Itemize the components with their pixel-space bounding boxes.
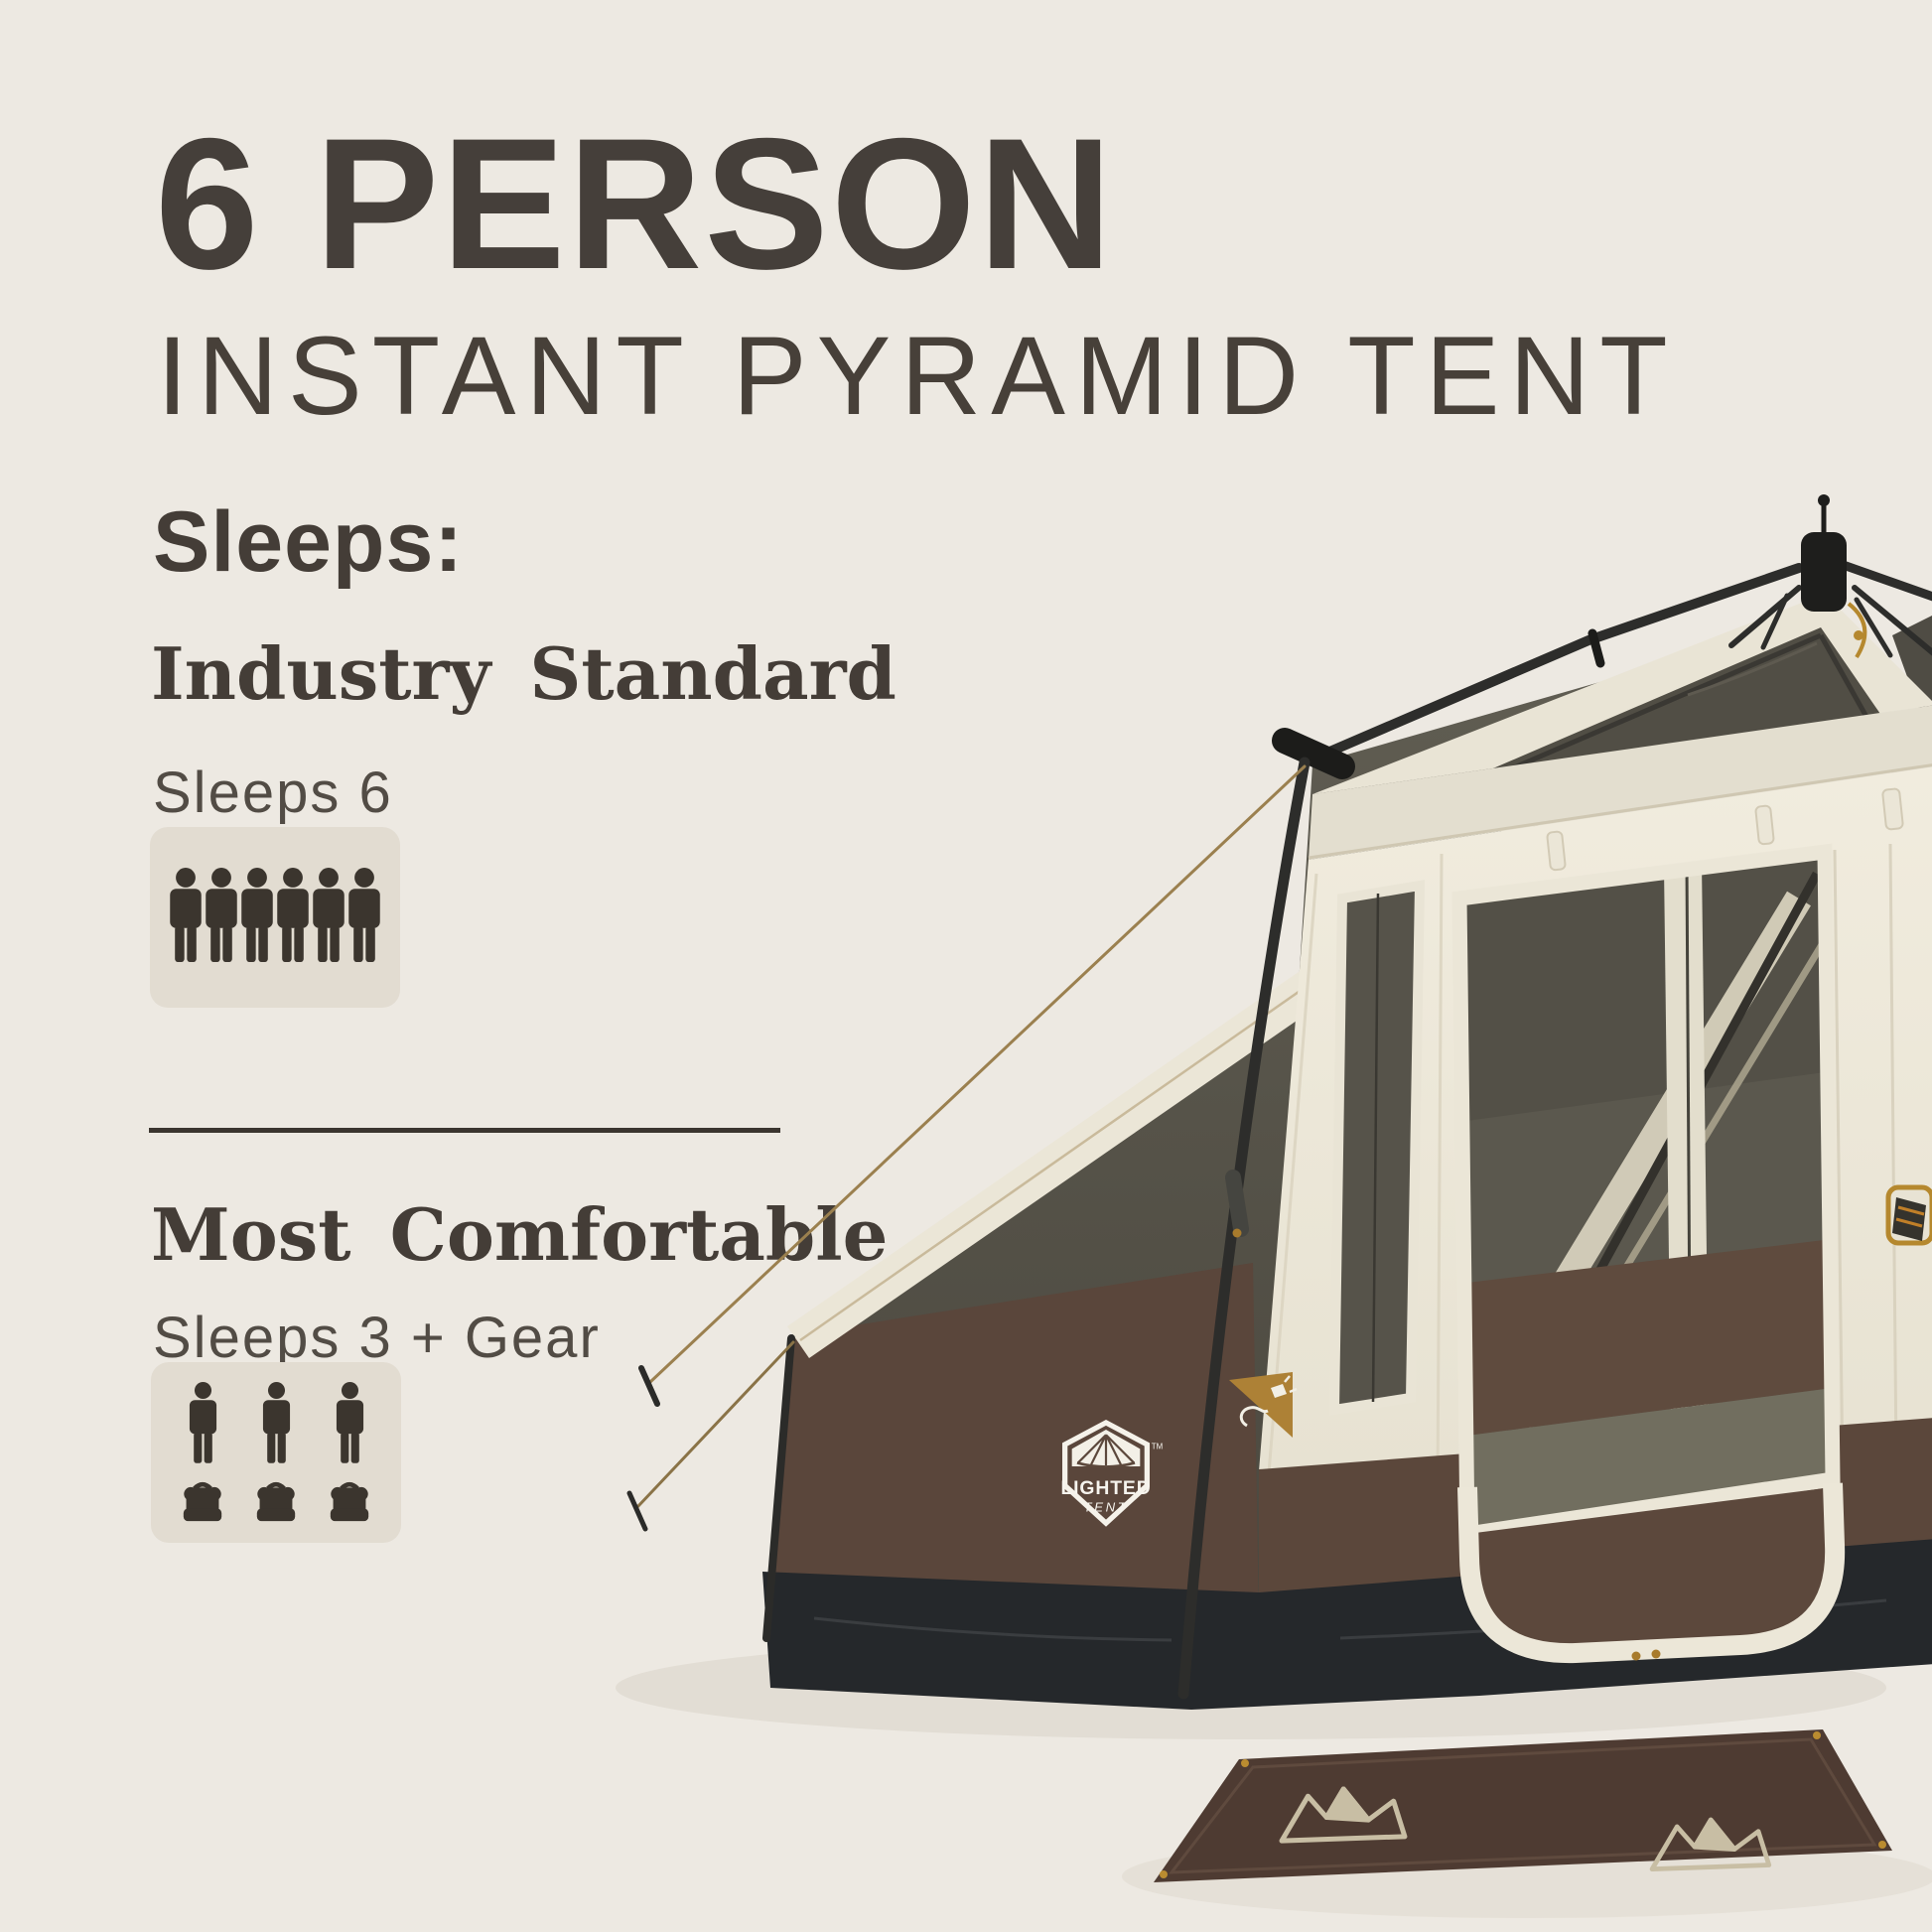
pole-gold-ring xyxy=(1233,1229,1242,1238)
tent-side-window xyxy=(1334,886,1420,1410)
badge-secondary-text: TENT xyxy=(1084,1500,1129,1515)
badge-primary-text: LIGHTED xyxy=(1060,1477,1151,1499)
pole-foam-grip xyxy=(1285,741,1342,766)
badge-trademark: TM xyxy=(1152,1442,1163,1450)
tent-front-window xyxy=(1449,834,1847,1549)
tent-product-photo: LIGHTED TENT TM xyxy=(0,0,1932,1932)
door-zipper-pull xyxy=(1652,1650,1661,1659)
door-zipper-pull xyxy=(1632,1652,1641,1661)
e-port-device xyxy=(1888,1187,1932,1243)
product-infographic: 6 PERSON INSTANT PYRAMID TENT Sleeps: In… xyxy=(0,0,1932,1932)
